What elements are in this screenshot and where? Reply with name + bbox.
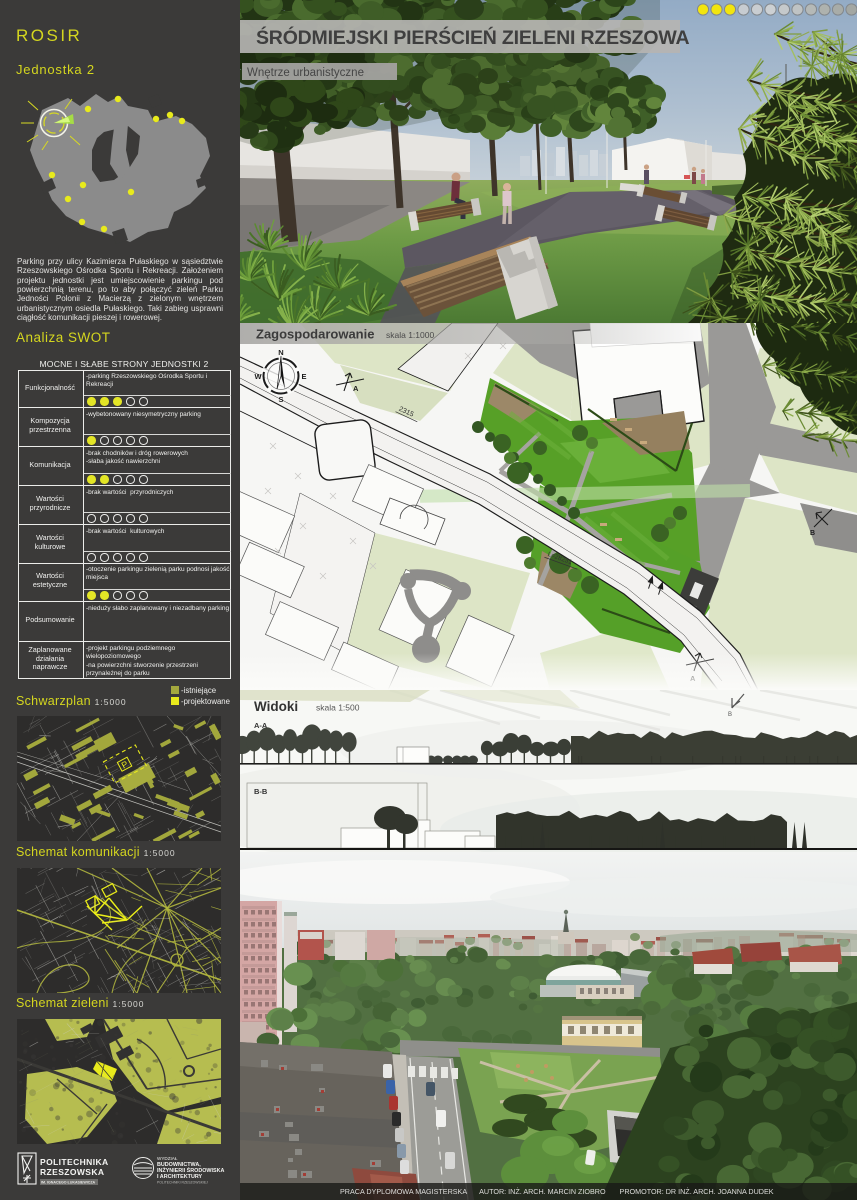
svg-text:I ARCHITEKTURY: I ARCHITEKTURY: [157, 1174, 203, 1180]
svg-text:WYDZIAŁ: WYDZIAŁ: [157, 1156, 178, 1161]
svg-text:S: S: [278, 395, 283, 404]
svg-text:Widoki: Widoki: [254, 699, 298, 714]
svg-text:Zagospodarowanie: Zagospodarowanie: [256, 327, 374, 342]
svg-text:INŻYNIERII ŚRODOWISKA: INŻYNIERII ŚRODOWISKA: [157, 1167, 224, 1174]
svg-text:E: E: [301, 372, 306, 381]
svg-text:POLITECHNIKI RZESZOWSKIEJ: POLITECHNIKI RZESZOWSKIEJ: [157, 1181, 208, 1185]
svg-text:B-B: B-B: [254, 787, 268, 796]
svg-text:PRACA DYPLOMOWA MAGISTERSKA: PRACA DYPLOMOWA MAGISTERSKA AUTOR: INŻ. …: [340, 1187, 774, 1196]
svg-text:skala 1:1000: skala 1:1000: [386, 330, 434, 340]
svg-text:B: B: [728, 712, 732, 718]
svg-text:W: W: [254, 372, 262, 381]
svg-text:B: B: [810, 530, 815, 537]
svg-text:IM. IGNACEGO ŁUKASIEWICZA: IM. IGNACEGO ŁUKASIEWICZA: [41, 1181, 96, 1185]
svg-text:skala 1:500: skala 1:500: [316, 703, 360, 713]
svg-text:A: A: [353, 384, 359, 393]
svg-text:Wnętrze urbanistyczne: Wnętrze urbanistyczne: [247, 67, 364, 79]
svg-text:ŚRÓDMIEJSKI PIERŚCIEŃ ZIELENI: ŚRÓDMIEJSKI PIERŚCIEŃ ZIELENI RZESZOWA: [256, 25, 689, 49]
svg-text:RZESZOWSKA: RZESZOWSKA: [40, 1167, 104, 1177]
svg-text:POLITECHNIKA: POLITECHNIKA: [40, 1157, 109, 1167]
svg-text:N: N: [278, 348, 283, 357]
